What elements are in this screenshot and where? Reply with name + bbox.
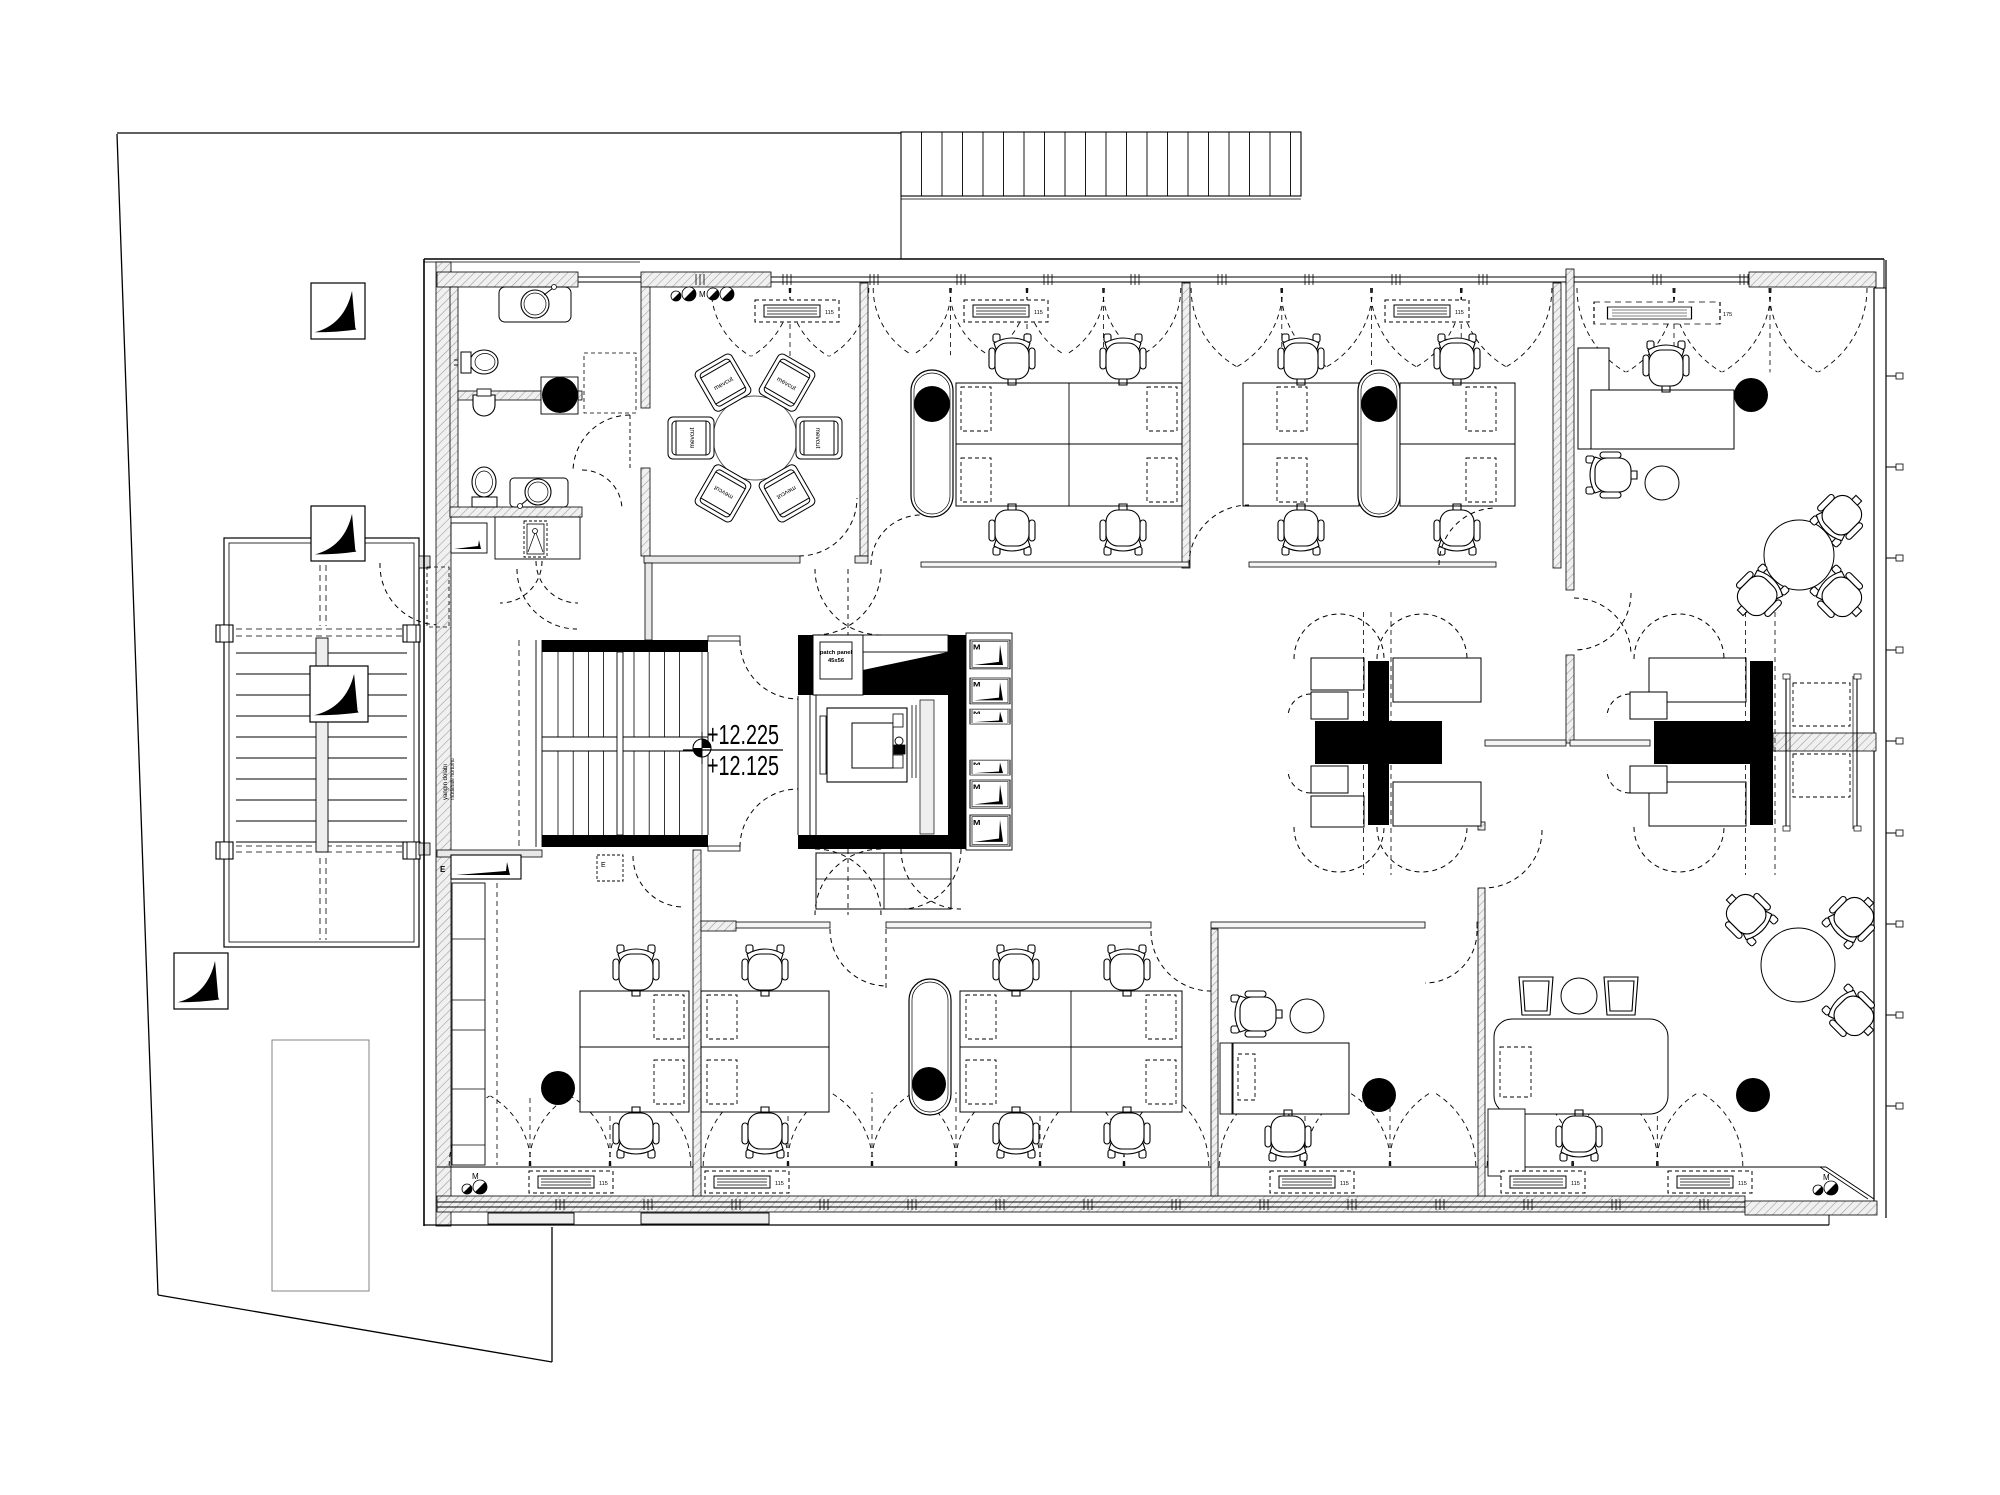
svg-text:E: E — [601, 862, 606, 869]
svg-text:E: E — [440, 865, 446, 874]
svg-text:patch panel: patch panel — [820, 650, 853, 656]
svg-text:müdahale hortumu: müdahale hortumu — [450, 758, 456, 800]
svg-text:+12.225: +12.225 — [707, 719, 779, 750]
svg-text:yangın dolabı: yangın dolabı — [443, 764, 449, 800]
svg-text:+12.125: +12.125 — [707, 750, 779, 781]
svg-text:45x56: 45x56 — [828, 658, 845, 664]
svg-text:175: 175 — [1723, 312, 1732, 318]
